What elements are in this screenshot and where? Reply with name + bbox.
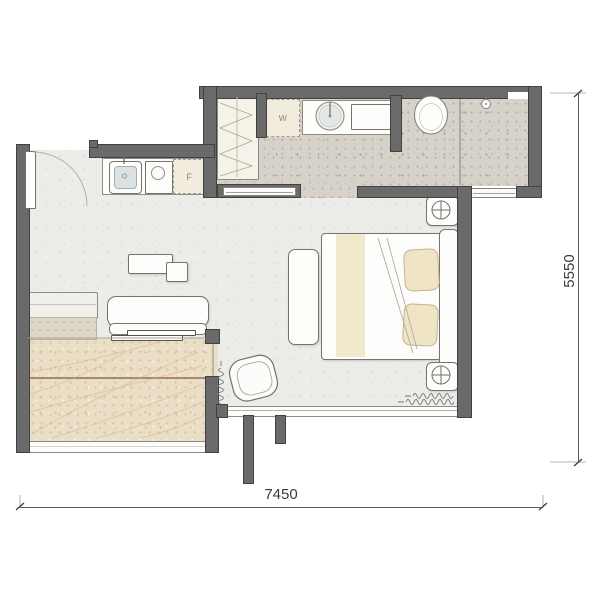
kitchen-sink-basin	[114, 166, 137, 189]
wall-top	[199, 86, 542, 99]
sideboard-divider	[28, 304, 96, 305]
shower-sliding-door	[470, 188, 518, 198]
wall-bedroom-right	[457, 186, 472, 418]
dimension-line-right	[578, 93, 579, 462]
nightstand-bottom	[426, 362, 459, 391]
fridge-label: F	[187, 172, 193, 182]
pillow-2	[402, 303, 439, 347]
mirror-cabinet	[351, 104, 392, 130]
hob	[145, 161, 173, 194]
deck-accent-line	[28, 377, 218, 379]
balcony-door-track-2	[111, 335, 183, 341]
balcony-ledge	[28, 441, 218, 453]
wall-shower-right	[528, 86, 542, 198]
bench	[288, 249, 319, 345]
wall-toilet-nook	[390, 95, 402, 152]
balcony-pier-upper	[205, 329, 220, 344]
window-end-block	[216, 404, 228, 418]
wall-kitchen	[89, 144, 215, 158]
headboard	[439, 229, 459, 367]
wall-bath-south	[357, 186, 470, 198]
wall-fin-long	[243, 415, 254, 484]
wall-kitchen-jamb	[89, 140, 98, 148]
balcony-deck	[28, 338, 218, 441]
bedroom-window	[218, 406, 458, 417]
wall-bath-south-right	[516, 186, 542, 198]
washing-machine: W	[266, 99, 300, 137]
pillow-1	[403, 248, 440, 292]
sideboard-lower-band	[28, 317, 97, 340]
wall-notch	[508, 92, 529, 99]
bed-runner	[336, 234, 365, 357]
bathroom-passage-floor	[300, 184, 357, 198]
washer-label: W	[279, 113, 288, 123]
sideboard	[28, 292, 98, 319]
wall-strip-left-vertical	[203, 86, 217, 198]
dimension-width-label: 7450	[251, 486, 311, 503]
coffee-table-small	[166, 262, 188, 282]
entry-door-leaf	[25, 151, 36, 209]
fridge: F	[173, 159, 206, 194]
dimension-line-bottom	[20, 507, 543, 508]
wall-fin-short	[275, 415, 286, 444]
floor-plan: F W	[0, 0, 600, 600]
wall-wardrobe-stub	[256, 93, 267, 138]
closet-sliding-door	[223, 187, 296, 196]
nightstand-top	[426, 196, 459, 226]
dimension-depth-label: 5550	[561, 241, 578, 301]
wardrobe	[217, 96, 259, 180]
